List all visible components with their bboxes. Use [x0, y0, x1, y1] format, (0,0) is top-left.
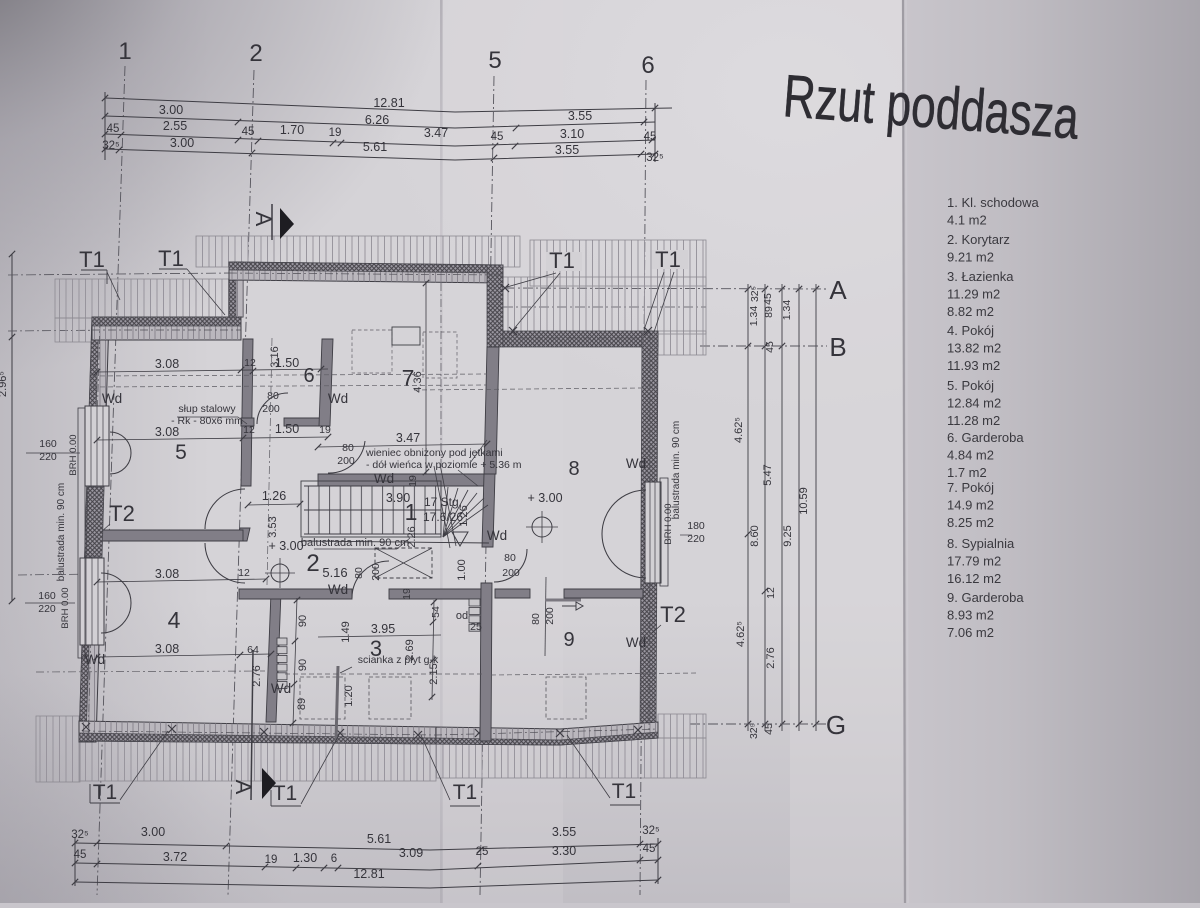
svg-text:4: 4 [168, 607, 181, 633]
svg-text:12: 12 [243, 424, 255, 436]
svg-text:T1: T1 [273, 782, 298, 805]
svg-text:4.84 m2: 4.84 m2 [947, 448, 994, 463]
svg-text:4.1 m2: 4.1 m2 [947, 213, 987, 228]
svg-text:6: 6 [641, 52, 654, 79]
svg-text:9. Garderoba: 9. Garderoba [947, 590, 1024, 605]
svg-text:17 Stg.: 17 Stg. [424, 495, 462, 509]
svg-text:90: 90 [297, 615, 309, 627]
svg-text:3.08: 3.08 [155, 567, 179, 581]
svg-text:3.95: 3.95 [371, 622, 395, 636]
svg-text:11.28 m2: 11.28 m2 [947, 413, 1000, 428]
svg-text:14.9 m2: 14.9 m2 [947, 498, 994, 513]
svg-text:4.62⁵: 4.62⁵ [733, 417, 745, 443]
svg-text:200: 200 [337, 455, 355, 467]
svg-text:Wd: Wd [487, 528, 507, 543]
svg-text:200: 200 [262, 403, 280, 415]
svg-text:80: 80 [342, 442, 354, 454]
svg-text:12.84 m2: 12.84 m2 [947, 396, 1001, 411]
svg-text:balustrada min. 90 cm: balustrada min. 90 cm [301, 537, 409, 549]
svg-text:4.62⁵: 4.62⁵ [735, 621, 747, 647]
svg-text:1.26: 1.26 [262, 489, 286, 503]
svg-text:scianka z płyt g-k: scianka z płyt g-k [358, 654, 439, 666]
svg-text:2.76: 2.76 [251, 665, 263, 686]
svg-text:19: 19 [329, 127, 342, 139]
svg-text:9.25: 9.25 [782, 525, 794, 546]
svg-text:2.76: 2.76 [765, 647, 777, 668]
svg-text:3.08: 3.08 [155, 357, 179, 371]
svg-text:6: 6 [331, 853, 337, 865]
svg-text:3.09: 3.09 [399, 846, 423, 860]
svg-text:80: 80 [504, 552, 516, 564]
svg-text:5.61: 5.61 [363, 140, 387, 154]
svg-text:12.81: 12.81 [373, 96, 404, 110]
svg-text:A: A [251, 212, 276, 227]
svg-text:T2: T2 [660, 602, 686, 627]
svg-text:19: 19 [407, 475, 419, 487]
svg-text:89: 89 [296, 698, 308, 710]
svg-text:5.61: 5.61 [367, 832, 391, 846]
svg-text:3.47: 3.47 [396, 431, 420, 445]
svg-text:BRH 0.00: BRH 0.00 [60, 587, 71, 628]
svg-text:T1: T1 [453, 781, 478, 804]
svg-text:5: 5 [175, 441, 187, 464]
svg-text:1.20: 1.20 [343, 685, 355, 706]
svg-text:1.50: 1.50 [275, 422, 299, 436]
svg-text:T1: T1 [655, 247, 681, 272]
svg-text:3.55: 3.55 [568, 109, 592, 123]
svg-text:3.47: 3.47 [424, 126, 448, 140]
svg-text:5.16: 5.16 [322, 565, 347, 580]
svg-text:G: G [826, 710, 846, 740]
svg-text:32⁵: 32⁵ [102, 140, 120, 152]
svg-text:1: 1 [118, 38, 131, 65]
svg-text:6: 6 [303, 365, 314, 387]
svg-text:17.79 m2: 17.79 m2 [947, 554, 1001, 569]
svg-text:8. Sypialnia: 8. Sypialnia [947, 536, 1015, 551]
svg-text:BRH 0.00: BRH 0.00 [663, 503, 674, 544]
svg-text:16.12 m2: 16.12 m2 [947, 571, 1001, 586]
svg-text:Wd: Wd [374, 471, 394, 486]
svg-text:80: 80 [267, 390, 279, 402]
svg-text:220: 220 [38, 603, 56, 615]
svg-text:45: 45 [763, 723, 775, 735]
svg-text:3.16: 3.16 [269, 346, 281, 367]
svg-text:Wd: Wd [626, 456, 646, 471]
svg-text:200: 200 [370, 563, 382, 581]
svg-text:9: 9 [563, 629, 574, 651]
svg-text:80: 80 [353, 567, 365, 579]
svg-text:8.82 m2: 8.82 m2 [947, 304, 994, 319]
svg-text:Wd: Wd [85, 652, 105, 667]
svg-text:3.08: 3.08 [155, 425, 179, 439]
svg-text:+ 3.00: + 3.00 [527, 491, 562, 505]
svg-text:45: 45 [643, 843, 656, 855]
svg-text:12: 12 [244, 357, 256, 369]
svg-text:2.55: 2.55 [163, 119, 187, 133]
svg-text:6. Garderoba: 6. Garderoba [947, 430, 1024, 445]
svg-text:Wd: Wd [271, 681, 291, 696]
svg-text:A: A [231, 780, 256, 795]
svg-text:- dół wieńca w poziomie + 5.36: - dół wieńca w poziomie + 5.36 m [366, 459, 522, 471]
svg-text:Wd: Wd [328, 391, 348, 406]
svg-text:8.93 m2: 8.93 m2 [947, 608, 994, 623]
svg-text:3.53: 3.53 [267, 516, 279, 537]
svg-text:13.82 m2: 13.82 m2 [947, 341, 1001, 356]
svg-text:8: 8 [568, 458, 579, 480]
svg-text:Wd: Wd [626, 635, 646, 650]
svg-text:32⁵: 32⁵ [71, 829, 89, 841]
svg-text:10.59: 10.59 [798, 487, 810, 515]
svg-text:220: 220 [39, 451, 57, 463]
svg-text:12: 12 [765, 587, 777, 599]
svg-text:45: 45 [762, 293, 774, 305]
svg-text:3.08: 3.08 [155, 642, 179, 656]
svg-text:12.81: 12.81 [353, 867, 384, 881]
svg-text:54: 54 [430, 606, 442, 618]
svg-text:1.26: 1.26 [458, 505, 470, 526]
svg-text:T2: T2 [109, 501, 135, 526]
svg-text:od: od [456, 610, 468, 622]
svg-text:+ 3.00: + 3.00 [268, 539, 303, 553]
svg-text:T1: T1 [158, 246, 184, 271]
svg-text:A: A [829, 275, 847, 305]
svg-text:19: 19 [265, 854, 278, 866]
svg-text:1: 1 [405, 499, 418, 525]
svg-text:12: 12 [238, 567, 250, 579]
svg-text:6.26: 6.26 [365, 113, 389, 127]
svg-text:wieniec obniżony pod jętkami: wieniec obniżony pod jętkami [365, 447, 503, 459]
svg-text:3.55: 3.55 [552, 825, 576, 839]
svg-text:90: 90 [297, 659, 309, 671]
svg-text:1.34: 1.34 [748, 306, 760, 327]
svg-text:T1: T1 [549, 248, 575, 273]
svg-text:7. Pokój: 7. Pokój [947, 480, 994, 495]
svg-text:45: 45 [74, 849, 87, 861]
svg-text:3. Łazienka: 3. Łazienka [947, 269, 1014, 284]
svg-text:Wd: Wd [328, 582, 348, 597]
svg-text:5. Pokój: 5. Pokój [947, 378, 994, 393]
svg-text:45: 45 [242, 126, 255, 138]
svg-text:32⁵: 32⁵ [646, 152, 664, 164]
svg-text:BRH 0.00: BRH 0.00 [68, 434, 79, 475]
svg-text:słup stalowy: słup stalowy [178, 403, 236, 415]
svg-text:3.72: 3.72 [163, 850, 187, 864]
svg-text:19: 19 [319, 424, 331, 436]
svg-text:1.7 m2: 1.7 m2 [947, 465, 987, 480]
svg-text:5.47: 5.47 [762, 464, 774, 485]
svg-text:160: 160 [39, 438, 57, 450]
svg-text:8.25 m2: 8.25 m2 [947, 515, 994, 530]
svg-text:2. Korytarz: 2. Korytarz [947, 232, 1010, 247]
svg-text:3.00: 3.00 [141, 825, 165, 839]
svg-text:7.06 m2: 7.06 m2 [947, 625, 994, 640]
svg-text:balustrada min. 90 cm: balustrada min. 90 cm [56, 483, 67, 581]
svg-text:2: 2 [306, 550, 319, 577]
svg-text:45: 45 [644, 131, 657, 143]
svg-text:160: 160 [38, 590, 56, 602]
svg-text:8.60: 8.60 [749, 525, 761, 546]
svg-text:5: 5 [488, 47, 501, 74]
svg-text:32⁵: 32⁵ [748, 723, 760, 739]
svg-text:1. Kl. schodowa: 1. Kl. schodowa [947, 195, 1040, 210]
svg-text:180: 180 [687, 520, 705, 532]
svg-text:45: 45 [491, 131, 504, 143]
svg-text:3.55: 3.55 [555, 143, 579, 157]
svg-text:T1: T1 [612, 780, 637, 803]
svg-text:1.00: 1.00 [456, 559, 468, 580]
svg-text:32⁵: 32⁵ [642, 825, 660, 837]
svg-text:9.21 m2: 9.21 m2 [947, 250, 994, 265]
svg-text:200: 200 [502, 567, 520, 579]
svg-text:25: 25 [470, 621, 482, 633]
svg-text:B: B [829, 332, 846, 362]
svg-text:4. Pokój: 4. Pokój [947, 323, 994, 338]
svg-text:2.96⁵: 2.96⁵ [0, 371, 9, 397]
svg-text:2: 2 [249, 40, 262, 67]
svg-text:89: 89 [763, 306, 775, 318]
svg-text:1.34: 1.34 [781, 300, 793, 321]
svg-text:45: 45 [764, 341, 776, 353]
svg-text:T1: T1 [93, 781, 118, 804]
svg-text:1.70: 1.70 [280, 123, 304, 137]
svg-text:11.93 m2: 11.93 m2 [947, 358, 1000, 373]
svg-text:T1: T1 [79, 247, 105, 272]
svg-text:Wd: Wd [102, 391, 122, 406]
svg-text:11.29 m2: 11.29 m2 [947, 287, 1000, 302]
svg-text:1.49: 1.49 [340, 621, 352, 642]
svg-text:80: 80 [530, 613, 542, 625]
svg-text:3.00: 3.00 [170, 136, 194, 150]
svg-text:25: 25 [476, 846, 489, 858]
svg-text:1.30: 1.30 [293, 851, 317, 865]
svg-text:3.30: 3.30 [552, 844, 576, 858]
svg-text:3.00: 3.00 [159, 103, 183, 117]
svg-text:45: 45 [107, 123, 120, 135]
svg-text:19: 19 [401, 588, 413, 600]
svg-text:3.10: 3.10 [560, 127, 584, 141]
